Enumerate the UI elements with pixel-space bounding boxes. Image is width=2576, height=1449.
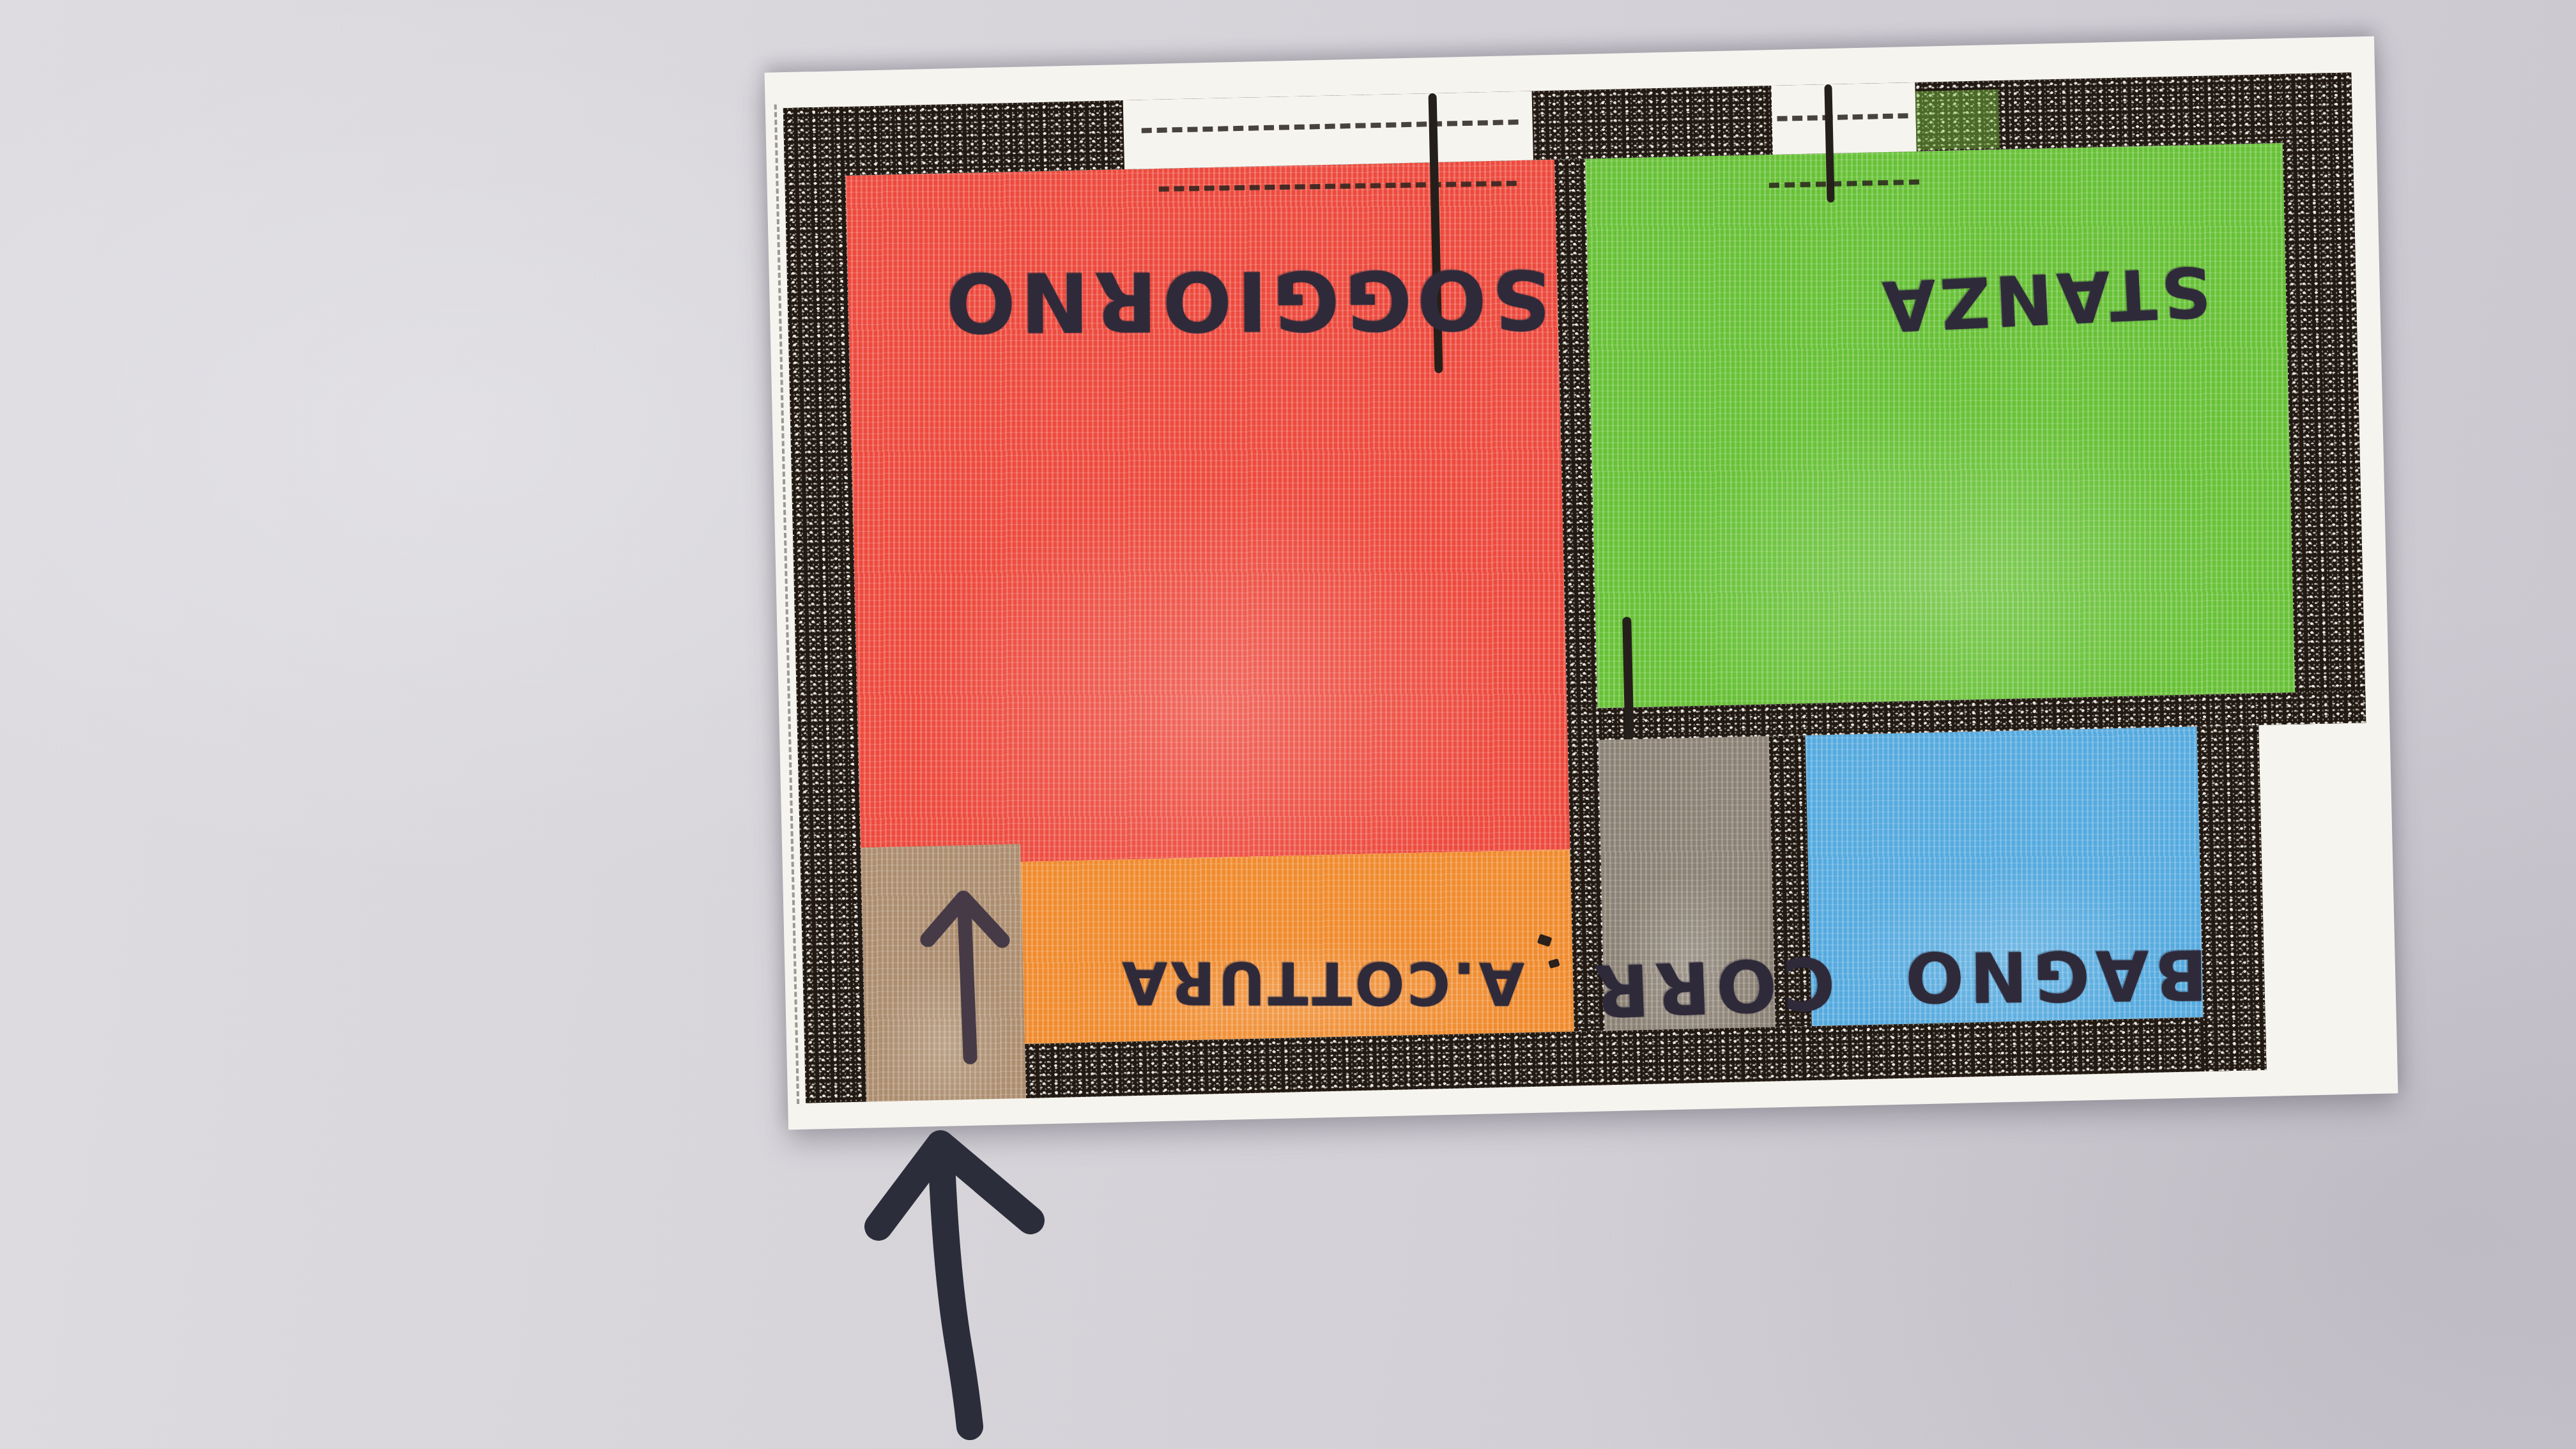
- room-label-stanza: STANZA: [1876, 251, 2212, 346]
- room-label-cottura: A.COTTURA: [1119, 948, 1524, 1017]
- wall-right-upper: [2281, 72, 2366, 724]
- direction-arrow-icon: [850, 1121, 1067, 1449]
- room-label-bagno: BAGNO: [1899, 935, 2208, 1017]
- photo-background: SOGGIORNO STANZA A.COTTURA CORR BAGNO: [0, 0, 2576, 1449]
- floor-plan: SOGGIORNO STANZA A.COTTURA CORR BAGNO: [783, 72, 2374, 1103]
- room-label-corridoio: CORR: [1587, 940, 1836, 1032]
- room-label-soggiorno: SOGGIORNO: [940, 252, 1551, 350]
- paper-sheet: SOGGIORNO STANZA A.COTTURA CORR BAGNO: [765, 36, 2398, 1130]
- room-stanza: [1585, 143, 2295, 709]
- crayon-overshoot: [1915, 89, 2000, 150]
- wall-right-lower: [2196, 725, 2266, 1071]
- entrance-arrow-icon: [903, 876, 1035, 1070]
